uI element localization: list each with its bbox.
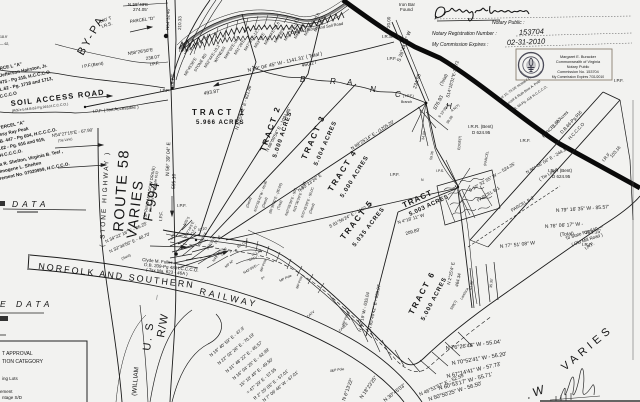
svg-text:I.P.F.: I.P.F. xyxy=(179,48,189,53)
svg-text:A: A xyxy=(346,78,352,87)
svg-text:Commonwealth of Virginia: Commonwealth of Virginia xyxy=(556,60,601,64)
svg-text:Notary Registration Number :: Notary Registration Number : xyxy=(432,31,497,37)
svg-text:02-31-2010: 02-31-2010 xyxy=(507,37,546,47)
svg-text:I.R.S.: I.R.S. xyxy=(382,34,393,39)
svg-text:I.P.S.: I.P.S. xyxy=(436,169,444,173)
svg-text:( I.P.F.): ( I.P.F.) xyxy=(403,94,414,98)
svg-text:— 62,: — 62, xyxy=(0,42,9,46)
svg-text:Notary Public: Notary Public xyxy=(567,65,590,69)
svg-text:51.30': 51.30' xyxy=(469,280,474,290)
svg-text:35.30': 35.30' xyxy=(489,278,494,288)
svg-text:N: N xyxy=(370,85,376,94)
svg-text:I.R.F.: I.R.F. xyxy=(520,138,531,143)
svg-text:I.P.F.: I.P.F. xyxy=(390,172,400,177)
svg-text:18.9': 18.9' xyxy=(0,35,8,39)
svg-text:ing Lots: ing Lots xyxy=(2,376,19,381)
svg-text:Notary Public :: Notary Public : xyxy=(492,20,525,26)
svg-text:N 56° 39' 04" E: N 56° 39' 04" E xyxy=(165,141,172,176)
svg-text:My Commission Expires :: My Commission Expires : xyxy=(432,42,489,48)
svg-text:I.P.F.: I.P.F. xyxy=(158,211,164,221)
svg-text:E DATA: E DATA xyxy=(0,299,53,309)
svg-text:D 624.95: D 624.95 xyxy=(472,130,491,135)
svg-text:I.P.F.: I.P.F. xyxy=(177,203,187,208)
svg-text:My Commission Expires 7/31/201: My Commission Expires 7/31/2010 xyxy=(552,75,605,79)
svg-text:Commission No. 153704: Commission No. 153704 xyxy=(557,70,599,74)
svg-text:I.P.F.: I.P.F. xyxy=(387,56,397,61)
svg-text:T APPROVAL: T APPROVAL xyxy=(2,351,33,357)
svg-text:Margaret E. Buracker: Margaret E. Buracker xyxy=(560,55,597,59)
svg-text:C: C xyxy=(395,90,401,99)
svg-text:I.R.R. (Bent): I.R.R. (Bent) xyxy=(468,124,494,129)
svg-text:595.10: 595.10 xyxy=(171,173,178,189)
svg-text:20.00: 20.00 xyxy=(386,16,391,28)
svg-text:Branch: Branch xyxy=(401,100,412,104)
svg-text:I.R.F. (Bent): I.R.F. (Bent) xyxy=(548,168,573,173)
svg-text:TION CATEGORY: TION CATEGORY xyxy=(2,359,44,365)
svg-text:210.33: 210.33 xyxy=(177,16,182,30)
svg-text:Found: Found xyxy=(400,7,413,12)
svg-text:I.P.F.: I.P.F. xyxy=(614,78,624,83)
svg-text:B: B xyxy=(300,75,306,84)
svg-text:274.05': 274.05' xyxy=(133,7,148,12)
svg-text:D 624.95: D 624.95 xyxy=(552,174,571,179)
svg-text:ntage S/D: ntage S/D xyxy=(2,395,23,400)
svg-text:—: — xyxy=(154,295,160,301)
svg-text:I.P.F.: I.P.F. xyxy=(160,88,170,93)
svg-text:N54°32'46": N54°32'46" xyxy=(165,7,171,30)
svg-text:DATA: DATA xyxy=(12,199,49,209)
svg-text:R: R xyxy=(330,77,336,86)
svg-text:ement: ement xyxy=(0,389,13,394)
